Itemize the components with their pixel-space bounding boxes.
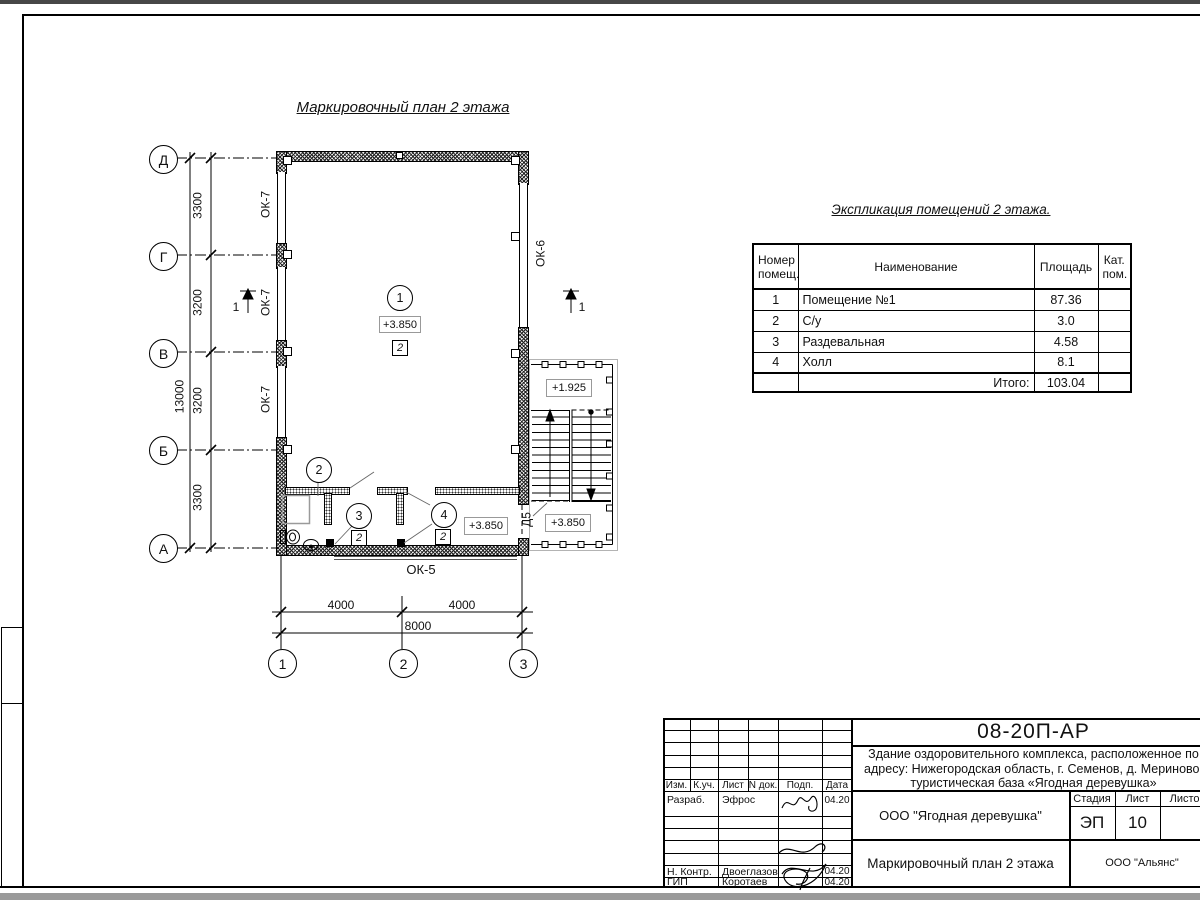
- tb-col-ndok: N док.: [748, 780, 778, 791]
- elev-hall: +3.850: [464, 517, 508, 535]
- dim-left-1: 3300: [191, 186, 204, 226]
- cell-cat: [1098, 331, 1131, 352]
- label-ok7-2: ОК-7: [259, 285, 272, 321]
- cell-cat: [1098, 352, 1131, 373]
- tb-sheet-label: Лист: [1115, 792, 1160, 806]
- cell-area: 4.58: [1034, 331, 1098, 352]
- sink: [304, 540, 319, 551]
- elev-stair-bottom: +3.850: [545, 514, 591, 532]
- cell-name: С/у: [798, 310, 1034, 331]
- dim-left-3: 3200: [191, 381, 204, 421]
- table-row: 4 Холл 8.1: [753, 352, 1131, 373]
- cat-mark-room1: 2: [392, 340, 408, 356]
- label-ok6: ОК-6: [534, 236, 547, 272]
- tb-stage-value: ЭП: [1069, 807, 1115, 839]
- cell-area: 8.1: [1034, 352, 1098, 373]
- tb-object-line1: Здание оздоровительного комплекса, распо…: [852, 747, 1200, 762]
- tb-doc-title: Маркировочный план 2 этажа: [852, 840, 1069, 886]
- label-ok5: ОК-5: [396, 562, 446, 577]
- cell-name: Помещение №1: [798, 289, 1034, 310]
- tb-company: ООО "Альянс": [1069, 840, 1200, 886]
- dim-bottom-total: 8000: [398, 619, 438, 633]
- tb-object-line2: адресу: Нижегородская область, г. Семено…: [852, 762, 1200, 777]
- elev-stair-mid: +1.925: [546, 379, 592, 397]
- room-mark-3: 3: [346, 503, 372, 529]
- tb-col-podp: Подп.: [778, 780, 822, 791]
- tb-col-list: Лист: [718, 780, 748, 791]
- section-label-left: 1: [230, 300, 242, 314]
- room-mark-4: 4: [431, 502, 457, 528]
- cell-num: 2: [753, 310, 798, 331]
- table-total-row: Итого: 103.04: [753, 373, 1131, 392]
- section-label-right: 1: [576, 300, 588, 314]
- table-row: 1 Помещение №1 87.36: [753, 289, 1131, 310]
- stair-arrow-down: [587, 410, 595, 500]
- tb-org: ООО "Ягодная деревушка": [852, 791, 1069, 839]
- label-d5: Д5: [520, 510, 533, 530]
- col-header-cat: Кат. пом.: [1098, 244, 1131, 289]
- tb-stage-label: Стадия: [1069, 792, 1115, 806]
- axis-bubble-d: Д: [149, 145, 178, 174]
- tb-line: [718, 718, 719, 886]
- axis-bubble-1: 1: [268, 649, 297, 678]
- dim-left-4: 3300: [191, 478, 204, 518]
- dim-ticks: [185, 153, 527, 638]
- axis-bubble-b: Б: [149, 436, 178, 465]
- cat-mark-room4: 2: [435, 529, 451, 545]
- axis-bubble-2: 2: [389, 649, 418, 678]
- dim-left-2: 3200: [191, 283, 204, 323]
- tb-sheets-label: Листов: [1160, 792, 1200, 806]
- cell-area: 3.0: [1034, 310, 1098, 331]
- tb-object-line3: туристическая база «Ягодная деревушка»: [852, 776, 1200, 791]
- cell-area: 87.36: [1034, 289, 1098, 310]
- table-row: 3 Раздевальная 4.58: [753, 331, 1131, 352]
- signature-dev: [779, 792, 821, 815]
- axis-bubble-g: Г: [149, 242, 178, 271]
- tb-line: [663, 816, 852, 817]
- cell-cat: [1098, 310, 1131, 331]
- tb-object: Здание оздоровительного комплекса, распо…: [852, 747, 1200, 791]
- axis-bubble-3: 3: [509, 649, 538, 678]
- cell-num: 3: [753, 331, 798, 352]
- tb-dev-date: 04.20: [822, 794, 852, 806]
- dim-left-total: 13000: [173, 373, 186, 421]
- shower-tray: [283, 496, 310, 524]
- tb-doc-code: 08-20П-АР: [852, 719, 1200, 745]
- table-title: Экспликация помещений 2 этажа.: [791, 202, 1091, 217]
- cell-cat: [1098, 289, 1131, 310]
- sheet: { "plan": { "title": "Маркировочный план…: [0, 0, 1200, 900]
- dim-bottom-1: 4000: [321, 598, 361, 612]
- signature-gip: [772, 838, 834, 892]
- cell-name: Холл: [798, 352, 1034, 373]
- tb-gip-label: ГИП: [667, 877, 719, 887]
- col-header-num: Номер помещ.: [753, 244, 798, 289]
- cat-mark-room3: 2: [351, 530, 367, 546]
- room-mark-1: 1: [387, 285, 413, 311]
- tb-col-data: Дата: [822, 780, 852, 791]
- dim-bottom-2: 4000: [442, 598, 482, 612]
- stair-arrow-up: [546, 410, 554, 497]
- axis-bubble-a: А: [149, 534, 178, 563]
- elev-main: +3.850: [379, 316, 421, 333]
- tb-col-kuch: К.уч.: [690, 780, 718, 791]
- tb-col-izm: Изм.: [663, 780, 690, 791]
- tb-dev-name: Эфрос: [722, 794, 778, 806]
- label-ok7-1: ОК-7: [259, 187, 272, 223]
- col-header-area: Площадь: [1034, 244, 1098, 289]
- cell-name: Раздевальная: [798, 331, 1034, 352]
- room-mark-2: 2: [306, 457, 332, 483]
- total-value: 103.04: [1034, 373, 1098, 392]
- cell-num: 1: [753, 289, 798, 310]
- label-ok7-3: ОК-7: [259, 382, 272, 418]
- col-header-name: Наименование: [798, 244, 1034, 289]
- total-label: Итого:: [798, 373, 1034, 392]
- tb-line: [663, 828, 852, 829]
- cell-num: 4: [753, 352, 798, 373]
- toilet: [281, 530, 300, 544]
- section-mark-left: [240, 289, 256, 313]
- axis-bubble-v: В: [149, 339, 178, 368]
- tb-dev-label: Разраб.: [667, 794, 717, 806]
- explication-table: Номер помещ. Наименование Площадь Кат. п…: [752, 243, 1132, 393]
- tb-sheet-value: 10: [1115, 807, 1160, 839]
- table-row: 2 С/у 3.0: [753, 310, 1131, 331]
